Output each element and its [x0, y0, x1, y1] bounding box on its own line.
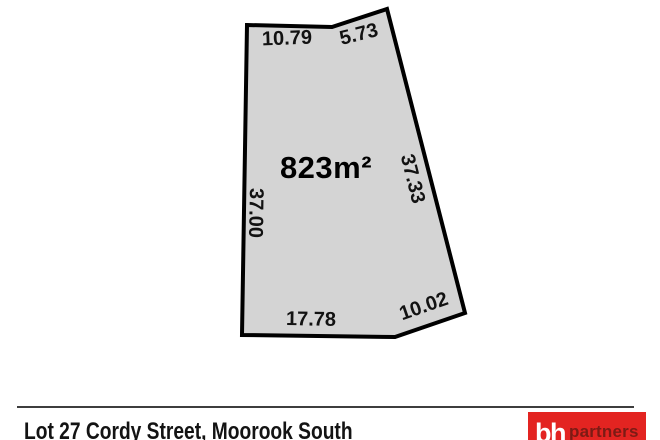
- parcel-outline: [0, 0, 660, 440]
- agency-logo: bh partners: [528, 412, 646, 440]
- agency-logo-text: partners: [569, 423, 639, 440]
- property-address: Lot 27 Cordy Street, Moorook South: [24, 420, 353, 440]
- dimension-left-edge: 37.00: [243, 188, 267, 238]
- dimension-top-edge: 10.79: [262, 27, 313, 52]
- area-label: 823m²: [280, 150, 372, 186]
- dimension-bottom-edge: 17.78: [286, 308, 336, 332]
- footer-divider: [17, 406, 634, 408]
- lot-plan-image: 823m² 10.79 5.73 37.33 37.00 17.78 10.02…: [0, 0, 660, 440]
- agency-logo-glyph: bh: [535, 420, 565, 440]
